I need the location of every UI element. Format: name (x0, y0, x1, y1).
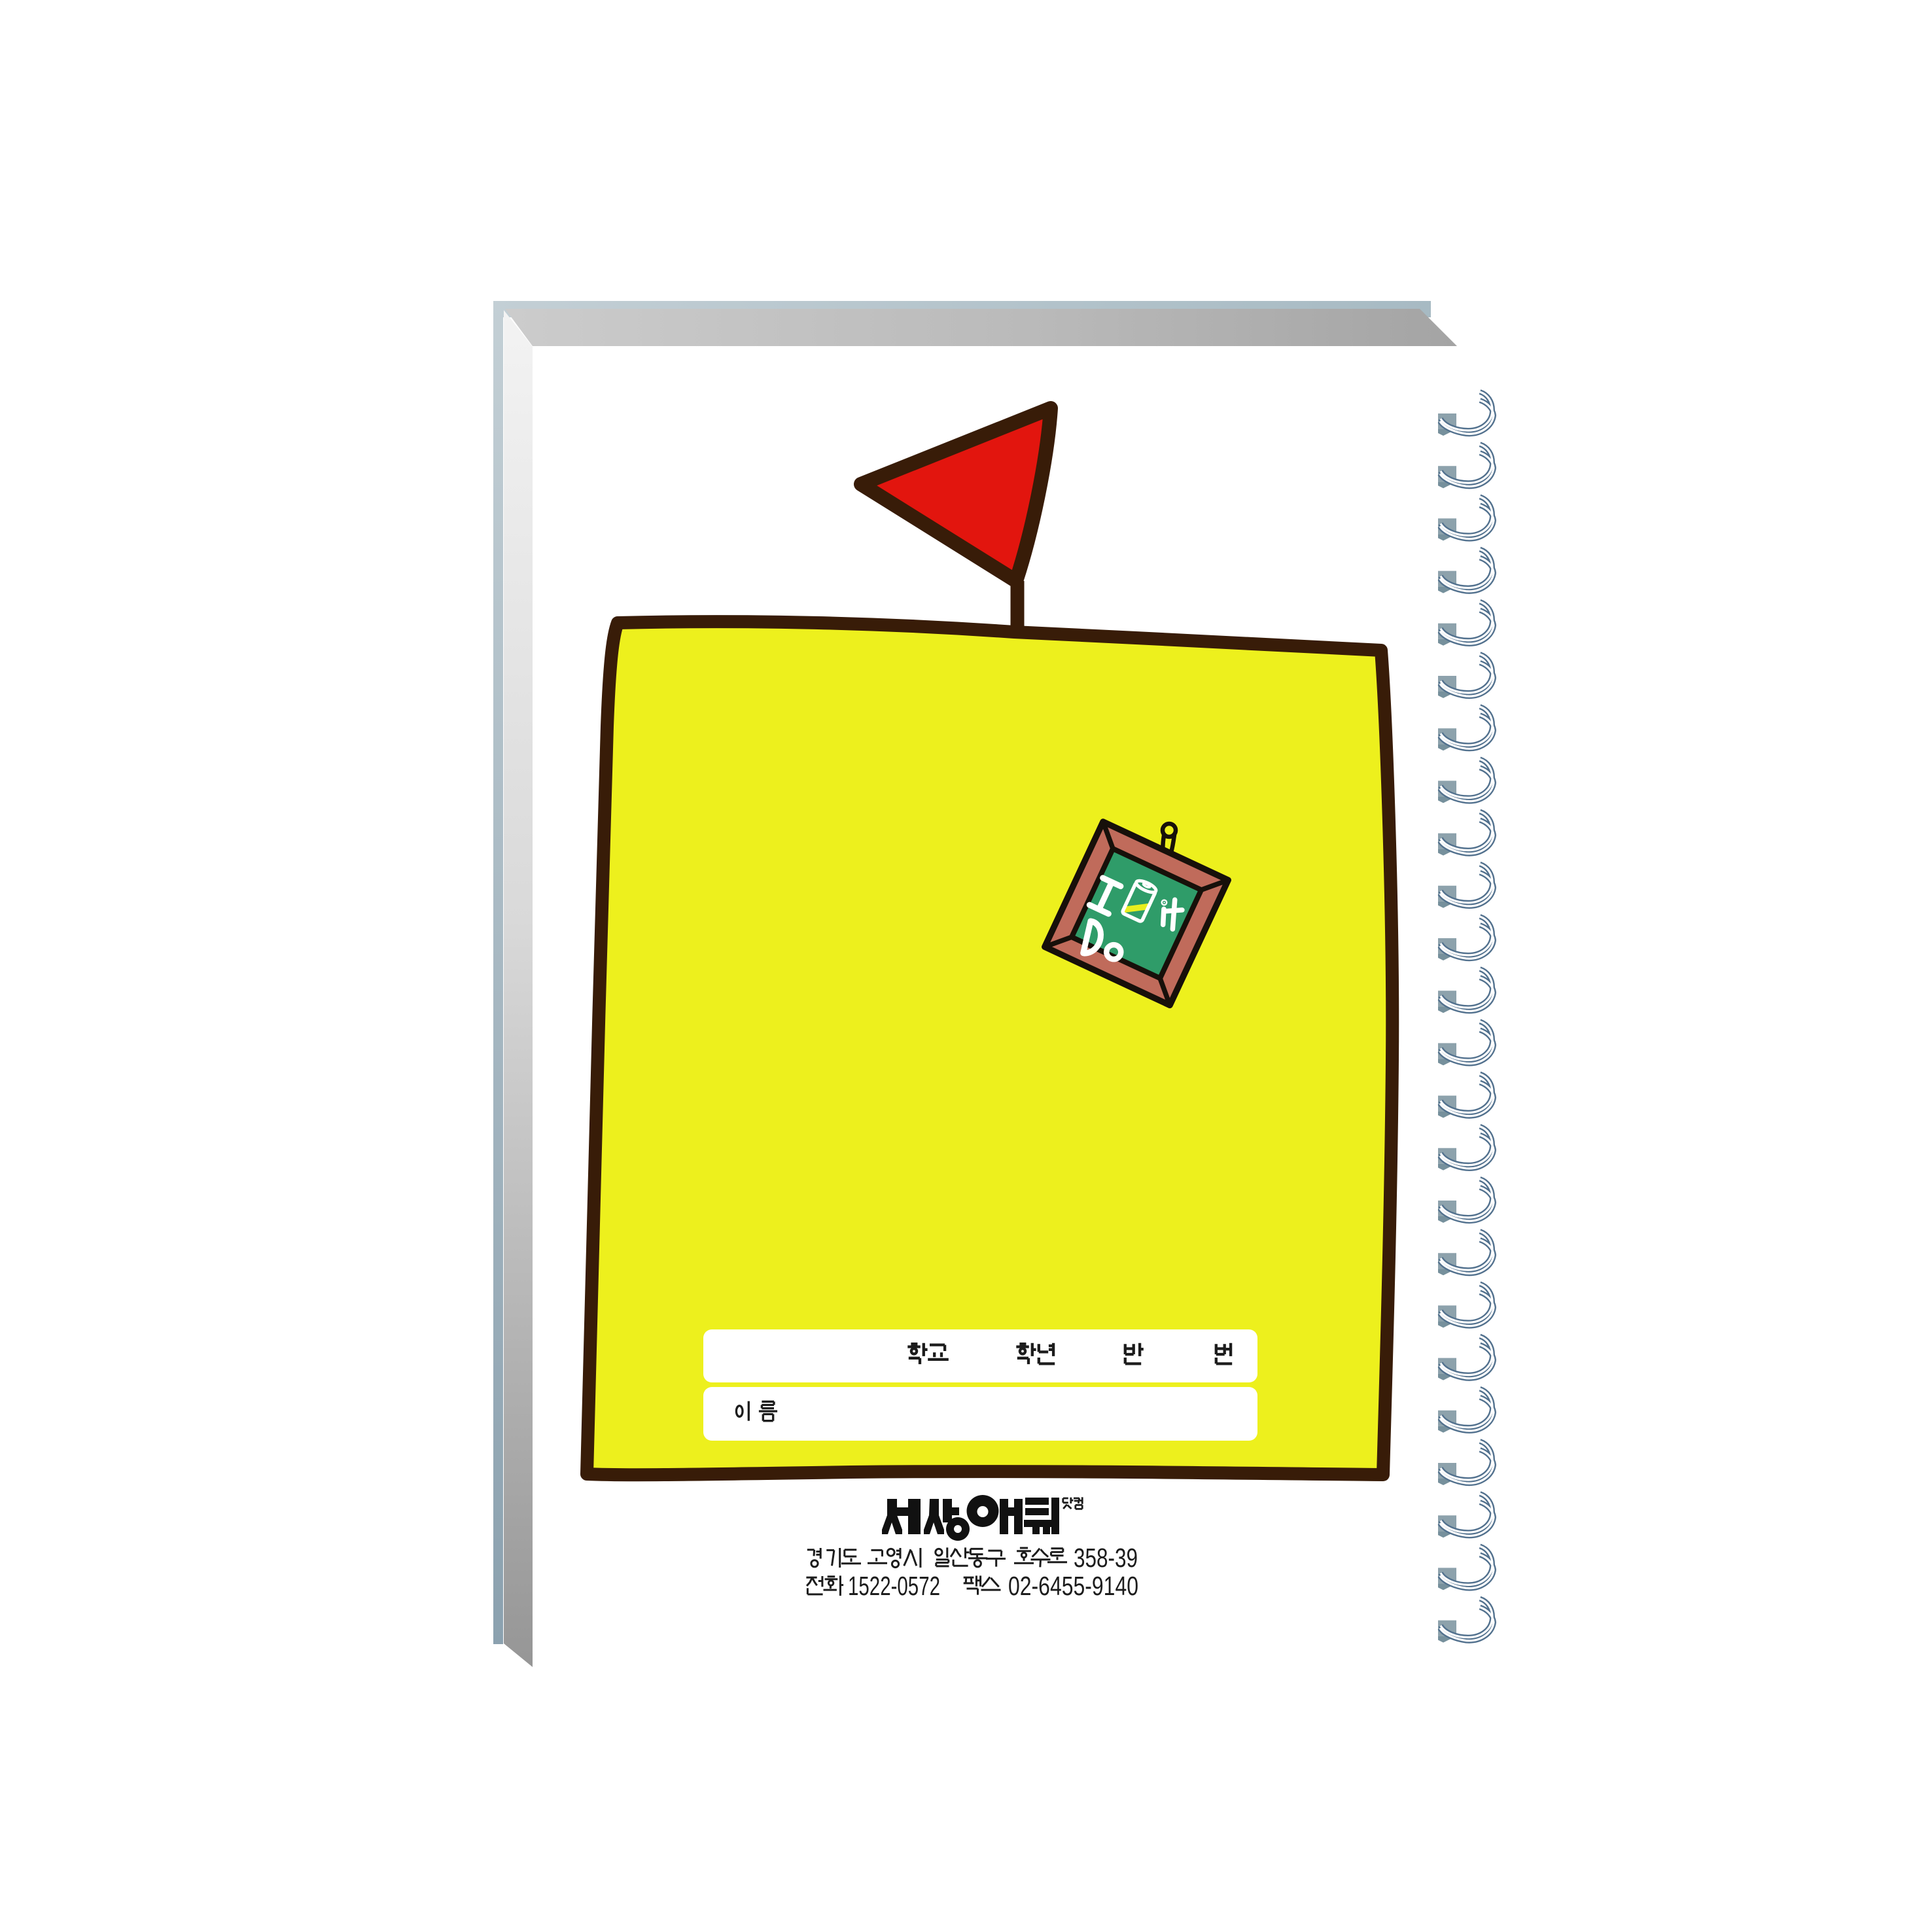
svg-text:1522-0572: 1522-0572 (848, 1571, 940, 1601)
svg-text:358-39: 358-39 (1074, 1543, 1138, 1573)
svg-text:02-6455-9140: 02-6455-9140 (1008, 1571, 1138, 1601)
